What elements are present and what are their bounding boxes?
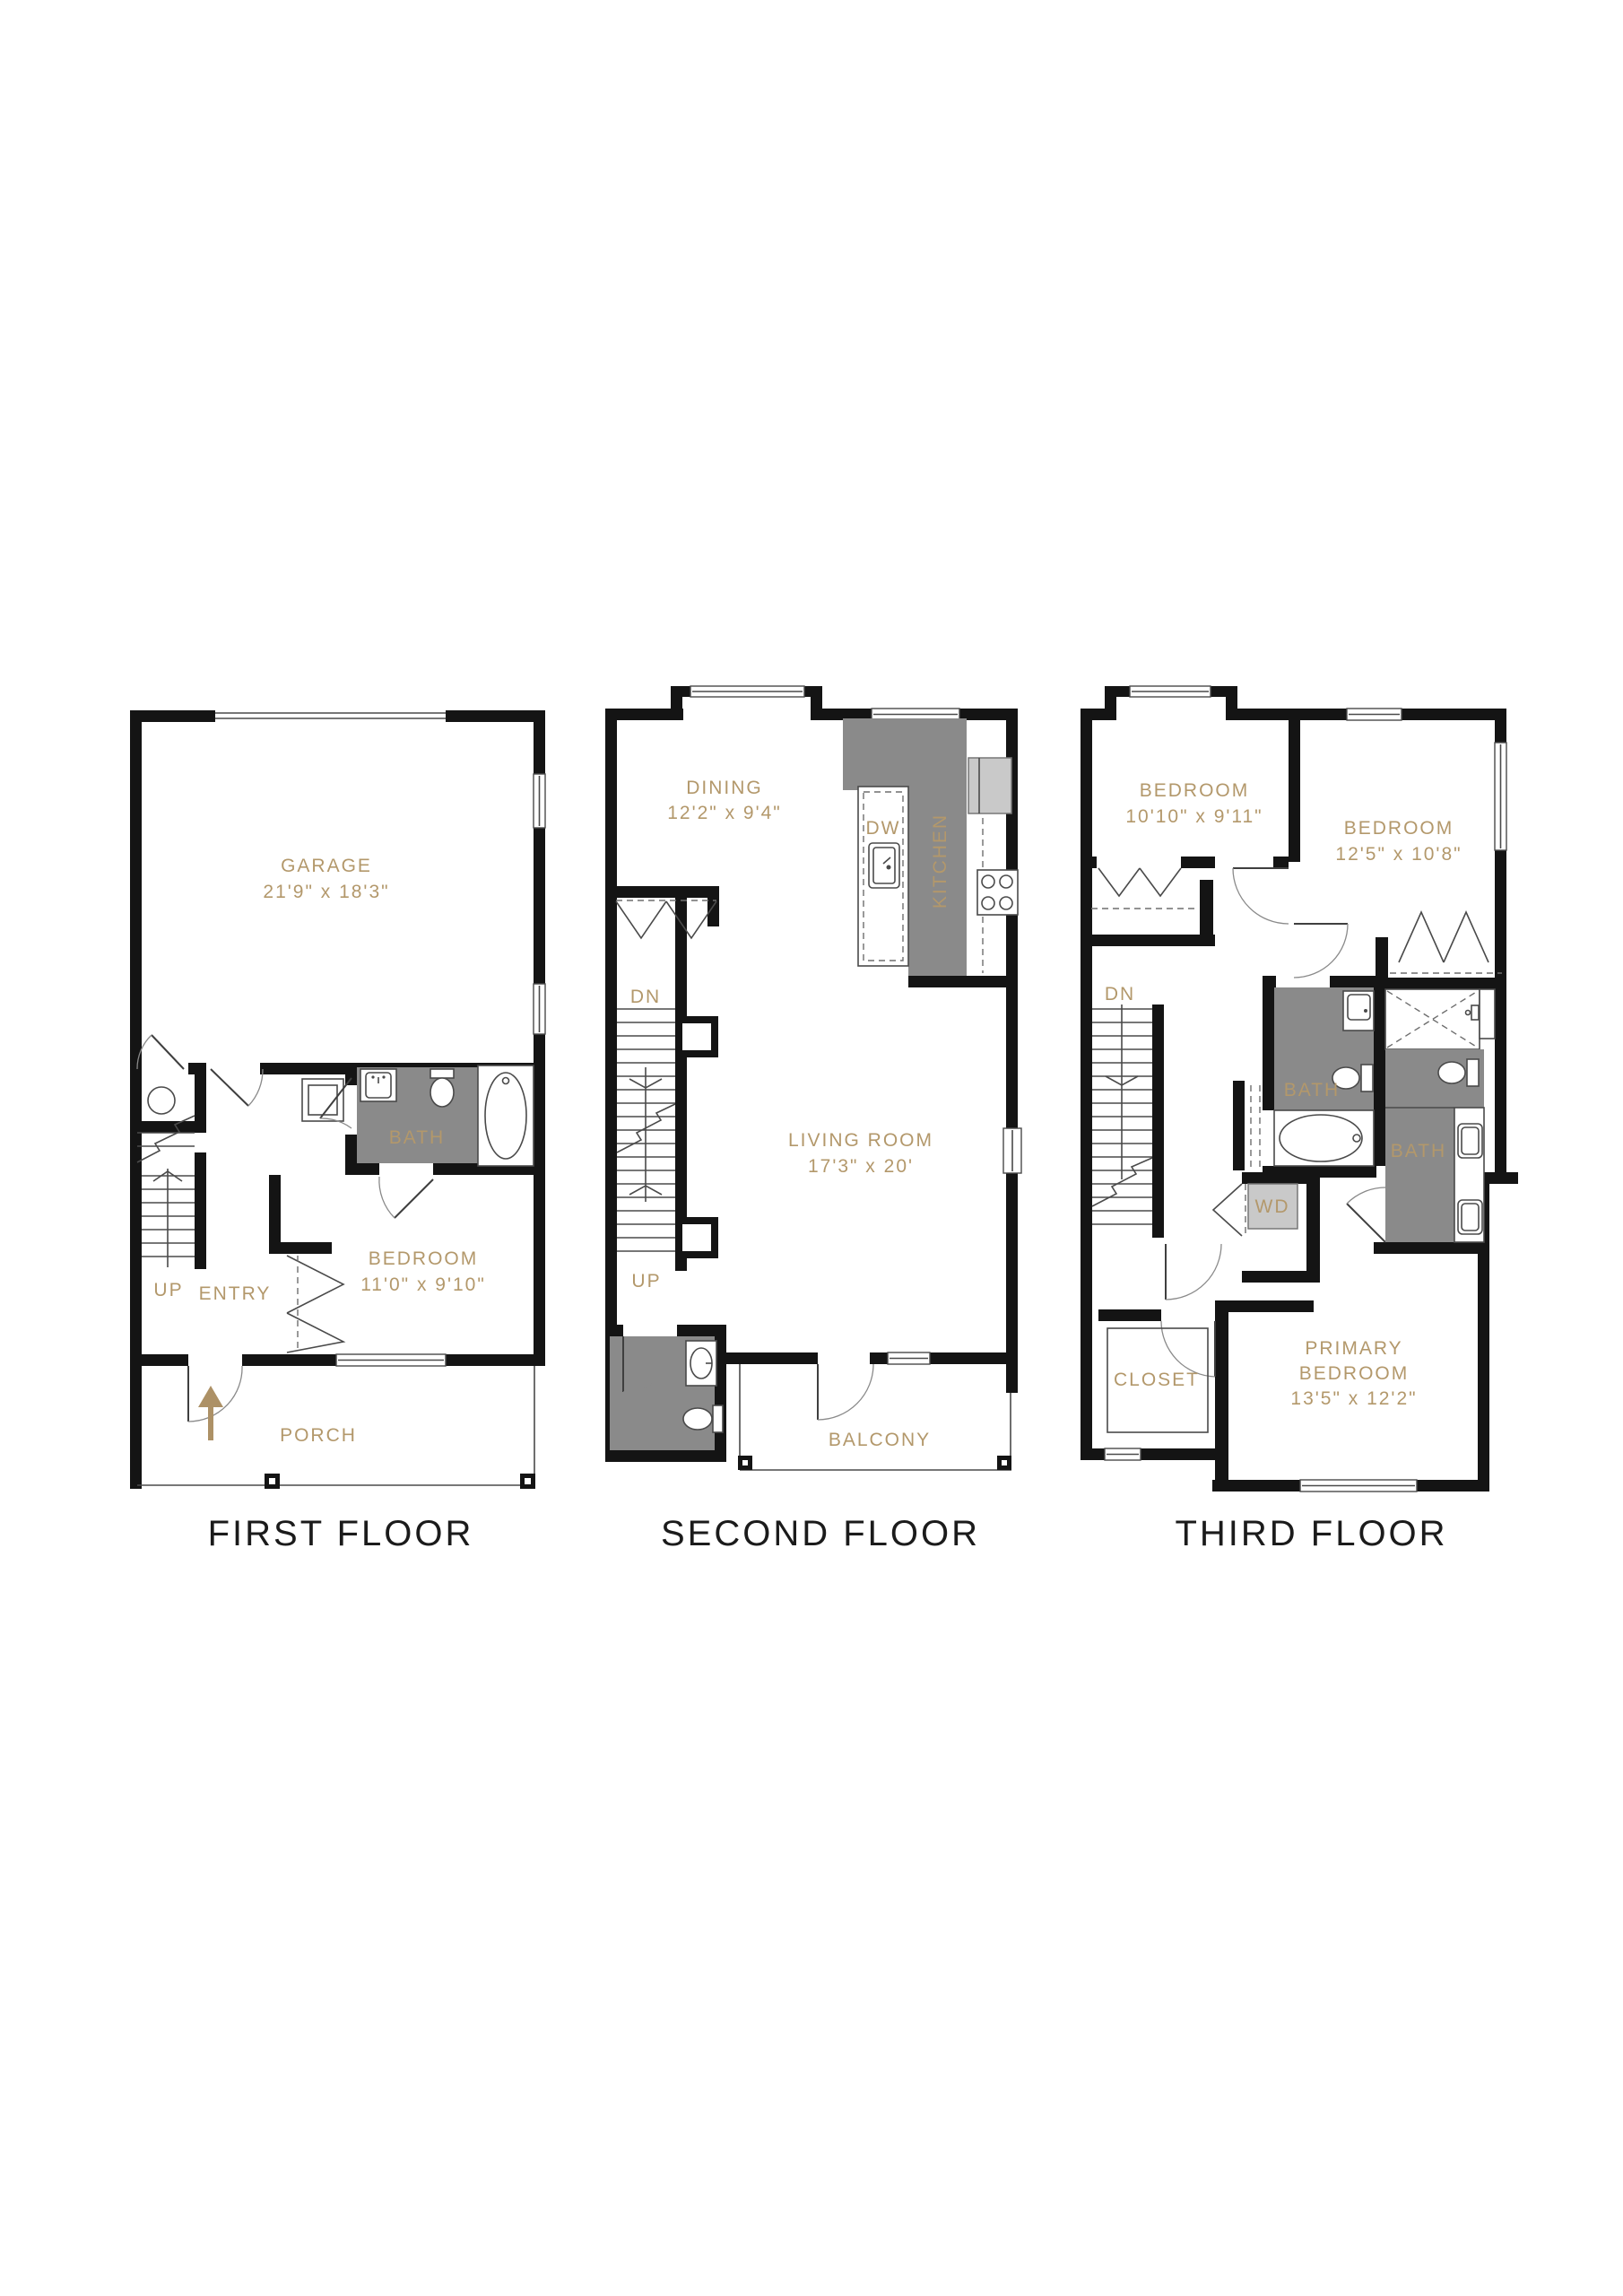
balcony-zone <box>738 1364 1011 1470</box>
shower-icon <box>1385 989 1495 1049</box>
mechanical-room <box>137 1035 184 1114</box>
toilet-icon <box>430 1078 454 1107</box>
garage-label: GARAGE <box>281 856 372 876</box>
third-floor-title: THIRD FLOOR <box>1081 1511 1542 1556</box>
bathtub-icon <box>485 1073 526 1159</box>
stairs-icon <box>1092 1004 1152 1224</box>
bath-a-zone <box>1274 987 1374 1166</box>
dining-label: DINING <box>686 778 763 798</box>
stairs-icon <box>617 1009 715 1255</box>
dn-label: DN <box>630 987 661 1007</box>
toilet-tank <box>713 1405 723 1432</box>
powder-room <box>610 1336 723 1450</box>
first-floor-title: FIRST FLOOR <box>126 1511 556 1556</box>
toilet-tank <box>1361 1065 1373 1091</box>
balcony-label: BALCONY <box>829 1430 931 1450</box>
bath-b-label: BATH <box>1391 1141 1446 1161</box>
bedroom-label: BEDROOM <box>369 1248 479 1269</box>
third-floor-plan: BEDROOM 10'10" x 9'11" BEDROOM 12'5" x 1… <box>1081 677 1542 1498</box>
living-room-label: LIVING ROOM <box>788 1130 933 1151</box>
primary-dims: 13'5" x 12'2" <box>1290 1388 1417 1409</box>
bedroom-b-dims: 12'5" x 10'8" <box>1335 844 1462 865</box>
dn-label: DN <box>1105 984 1135 1004</box>
bedroom-dims: 11'0" x 9'10" <box>360 1274 486 1295</box>
up-label: UP <box>631 1271 661 1291</box>
water-heater-icon <box>148 1087 175 1114</box>
linen-closet <box>1251 1085 1260 1169</box>
bathtub-icon <box>1280 1115 1362 1161</box>
bedroom-a-label: BEDROOM <box>1140 780 1250 801</box>
bedroom-b-label: BEDROOM <box>1344 818 1454 839</box>
bedroom-a-dims: 10'10" x 9'11" <box>1125 806 1263 827</box>
primary-label-2: BEDROOM <box>1299 1363 1410 1384</box>
living-room-dims: 17'3" x 20' <box>808 1156 914 1177</box>
bath-label: BATH <box>389 1127 445 1148</box>
stairs-icon <box>137 1116 195 1267</box>
bath-zone <box>357 1065 534 1166</box>
dining-closet-bifold-icon <box>616 900 716 938</box>
fridge-icon <box>968 758 1011 813</box>
second-floor-title: SECOND FLOOR <box>605 1511 1036 1556</box>
up-label: UP <box>153 1280 183 1300</box>
toilet-tank <box>1467 1059 1479 1086</box>
stair-landing <box>679 1020 715 1054</box>
toilet-icon <box>683 1408 712 1430</box>
toilet-icon <box>1438 1062 1465 1083</box>
bedroom-closet-bifold-icon <box>287 1256 343 1352</box>
toilet-tank <box>430 1069 454 1078</box>
first-floor-plan: GARAGE 21'9" x 18'3" BATH BEDROOM 11'0" … <box>126 677 556 1498</box>
entry-arrow-icon <box>198 1386 223 1440</box>
primary-label-1: PRIMARY <box>1305 1338 1402 1359</box>
sink-icon <box>1348 995 1370 1020</box>
dining-dims: 12'2" x 9'4" <box>667 803 782 823</box>
bath-a-label: BATH <box>1284 1080 1340 1100</box>
second-floor-plan: DINING 12'2" x 9'4" DW KITCHEN LIVING RO… <box>605 677 1036 1498</box>
entry-label: ENTRY <box>199 1283 272 1304</box>
garage-dims: 21'9" x 18'3" <box>263 882 389 902</box>
garage-door-icon <box>215 713 446 718</box>
washer-dryer-label: WD <box>1255 1196 1290 1217</box>
closet-label: CLOSET <box>1114 1370 1200 1390</box>
floor-plan-sheet: GARAGE 21'9" x 18'3" BATH BEDROOM 11'0" … <box>0 0 1623 2296</box>
porch-label: PORCH <box>280 1425 357 1446</box>
stair-landing <box>679 1221 715 1255</box>
sink-icon <box>366 1073 391 1098</box>
kitchen-label: KITCHEN <box>930 813 950 909</box>
bedroom-closet-bifold-icon <box>1091 868 1502 973</box>
dishwasher-label: DW <box>866 818 901 839</box>
door-leaf <box>152 1035 184 1069</box>
